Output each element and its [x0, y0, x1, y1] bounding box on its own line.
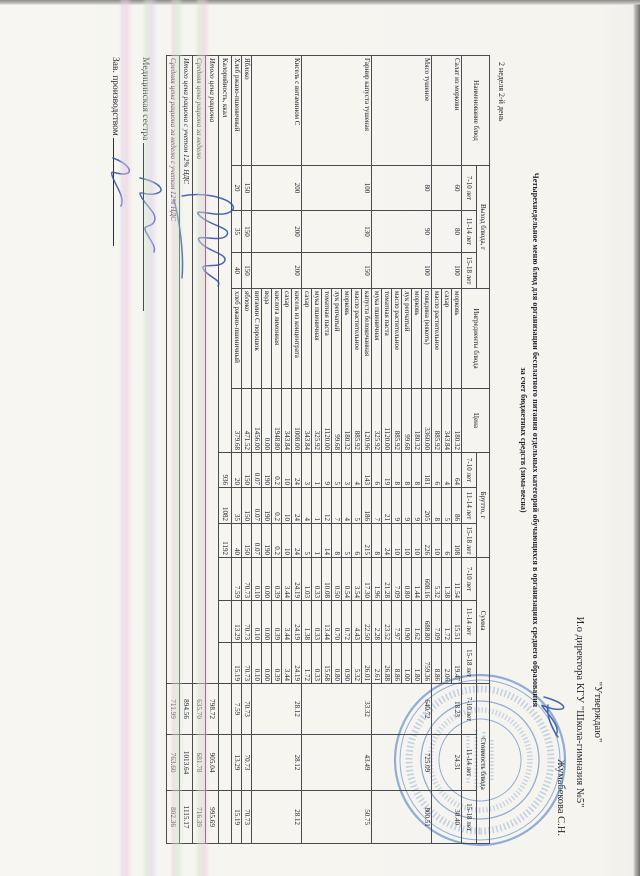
sum-value-cell: 2.06 — [442, 643, 452, 684]
sum-value-cell: 1.72 — [302, 643, 312, 684]
ingredient-price-cell: 120.96 — [362, 389, 372, 453]
ingredient-name-cell: лук репчатый — [402, 289, 412, 389]
dish-output-cell: 130 — [302, 211, 372, 253]
sum-value-cell: 0.90 — [402, 601, 412, 643]
ingredient-name-cell: мука пшеничная — [312, 289, 322, 389]
footer-row: Средняя цена рациона за неделю635.70681.… — [193, 56, 206, 844]
brutto-value-cell: 8 — [432, 488, 442, 524]
brutto-value-cell: 8 — [392, 453, 402, 488]
sum-value-cell: 70.73 — [242, 558, 252, 601]
dish-cost-cell: 18.23 — [432, 684, 462, 735]
brutto-value-cell: 21 — [382, 488, 392, 524]
brutto-value-cell: 186 — [362, 488, 372, 524]
ingredient-name-cell: хлеб ржано-пшеничный — [232, 289, 242, 389]
calories-label-cell: Калорийность, ккал — [219, 56, 232, 453]
sum-value-cell: 0.39 — [272, 601, 282, 643]
dish-cost-cell: 50.75 — [302, 791, 372, 844]
dish-cost-cell: 13.29 — [232, 735, 242, 791]
dish-cost-cell: 800.51 — [372, 791, 432, 844]
ingredient-price-cell: 1948.80 — [272, 389, 282, 453]
ingredient-name-cell: говядина (мякоть) — [422, 289, 432, 389]
brutto-value-cell: 0.07 — [252, 453, 262, 488]
sum-value-cell: 688.80 — [422, 601, 432, 643]
nurse-signature-label: Медицинская сестра — [140, 57, 150, 140]
brutto-value-cell: 5 — [332, 453, 342, 488]
footer-value-cell: 635.70 — [193, 684, 206, 735]
brutto-value-cell: 4 — [302, 488, 312, 524]
brutto-value-cell: 0.2 — [272, 524, 282, 558]
sum-value-cell: 3.54 — [352, 558, 362, 601]
dish-cost-cell: 28.12 — [252, 791, 302, 844]
brutto-value-cell: 190 — [262, 453, 272, 488]
brutto-value-cell: 0.2 — [272, 488, 282, 524]
header-price: Цена — [462, 389, 490, 453]
sum-value-cell: 11.54 — [452, 558, 462, 601]
empty-cell — [219, 558, 232, 601]
brutto-value-cell: 10 — [282, 524, 292, 558]
brutto-value-cell: 9 — [402, 488, 412, 524]
dish-output-cell: 40 — [232, 253, 242, 289]
brutto-value-cell: 24 — [292, 524, 302, 558]
brutto-value-cell: 0.07 — [252, 524, 262, 558]
brutto-value-cell: 10 — [412, 524, 422, 558]
brutto-value-cell: 10 — [282, 488, 292, 524]
sum-value-cell: 26.01 — [362, 643, 372, 684]
sum-value-cell: 1.38 — [302, 601, 312, 643]
dish-output-cell: 100 — [432, 253, 462, 289]
brutto-value-cell: 4 — [342, 488, 352, 524]
footer-value-cell: 711.99 — [167, 684, 180, 735]
brutto-value-cell: 108 — [452, 524, 462, 558]
sum-value-cell: 0.33 — [312, 643, 322, 684]
ingredient-name-cell: сахар — [442, 289, 452, 389]
sum-value-cell: 608.16 — [422, 558, 432, 601]
sum-value-cell: 0.72 — [342, 601, 352, 643]
sum-value-cell: 1.00 — [402, 643, 412, 684]
document-title: Четырехнедельное меню блюд для организац… — [519, 90, 540, 790]
ingredient-name-cell: сахар — [302, 289, 312, 389]
title-line-1: Четырехнедельное меню блюд для организац… — [531, 90, 540, 790]
ingredient-row: Мясо тушеное8090100говядина (мякоть)3360… — [422, 56, 432, 844]
dish-name-cell: Мясо тушеное — [372, 56, 432, 166]
dish-cost-cell: 7.59 — [232, 684, 242, 735]
brutto-value-cell: 64 — [452, 453, 462, 488]
ingredient-price-cell: 1456.00 — [252, 389, 262, 453]
header-brutto: Брутто, г — [477, 453, 490, 558]
brutto-value-cell: 5 — [342, 524, 352, 558]
ingredient-row: Хлеб ржано-пшеничный203540хлеб ржано-пше… — [232, 56, 242, 844]
dish-cost-cell: 28.12 — [252, 684, 302, 735]
sum-value-cell: 10.08 — [322, 558, 332, 601]
dish-cost-cell: 640.72 — [372, 684, 432, 735]
sum-value-cell: 7.09 — [392, 558, 402, 601]
dish-output-cell: 100 — [372, 253, 432, 289]
sum-value-cell: 8.86 — [432, 643, 442, 684]
ingredient-name-cell: морковь — [412, 289, 422, 389]
brutto-value-cell: 14 — [322, 524, 332, 558]
ingredient-price-cell: 343.84 — [442, 389, 452, 453]
dish-cost-cell: 28.12 — [252, 735, 302, 791]
brutto-value-cell: 1 — [312, 453, 322, 488]
footer-label-cell: Итого цена рациона — [206, 56, 219, 684]
dish-cost-cell: 43.49 — [302, 735, 372, 791]
sum-value-cell: 1.96 — [372, 558, 382, 601]
footer-row: Средняя цена рациона за неделю с учетом … — [167, 56, 180, 844]
table-header: Наименование блюд Выход блюда, г Ингреди… — [462, 56, 490, 844]
dish-name-cell: Кисель с витамином С — [252, 56, 302, 166]
dish-cost-cell: 33.32 — [302, 684, 372, 735]
dish-output-cell: 200 — [252, 166, 302, 211]
sum-value-cell: 3.44 — [282, 643, 292, 684]
empty-cell — [219, 735, 232, 791]
production-manager-signature-row: Зав. производством — [110, 57, 123, 246]
nurse-signature-row: Медицинская сестра — [140, 57, 153, 311]
brutto-value-cell: 10 — [282, 453, 292, 488]
dish-cost-cell: 70.73 — [242, 684, 252, 735]
production-manager-signature-label: Зав. производством — [110, 57, 120, 136]
sum-value-cell: 3.44 — [282, 558, 292, 601]
brutto-value-cell: 10 — [392, 524, 402, 558]
sum-value-cell: 0.80 — [402, 558, 412, 601]
dish-cost-cell: 725.09 — [372, 735, 432, 791]
sum-value-cell: 24.19 — [292, 643, 302, 684]
ingredient-price-cell: 0.00 — [262, 389, 272, 453]
brutto-value-cell: 5 — [302, 524, 312, 558]
header-age-2: 11-14 лет — [462, 211, 477, 253]
header-age-1: 7-10 лет — [462, 453, 477, 488]
brutto-value-cell: 10 — [402, 524, 412, 558]
footer-value-cell: 716.39 — [193, 791, 206, 844]
header-dish-name: Наименование блюд — [462, 56, 490, 166]
brutto-value-cell: 190 — [262, 524, 272, 558]
sum-value-cell: 26.88 — [382, 643, 392, 684]
sum-value-cell: 4.43 — [352, 601, 362, 643]
dish-name-cell: Хлеб ржано-пшеничный — [232, 56, 242, 166]
ingredient-name-cell: витамин С порошок — [252, 289, 262, 389]
production-manager-signature-line — [113, 138, 123, 246]
brutto-value-cell: 0.07 — [252, 488, 262, 524]
brutto-value-cell: 20 — [232, 453, 242, 488]
dish-output-cell: 80 — [432, 211, 462, 253]
sum-value-cell: 0.50 — [332, 558, 342, 601]
ingredient-row: Салат из моркови6080100морковь180.326486… — [452, 56, 462, 844]
sum-value-cell: 0.70 — [332, 601, 342, 643]
brutto-value-cell: 6 — [352, 524, 362, 558]
sum-value-cell: 13.44 — [322, 601, 332, 643]
sum-value-cell: 21.28 — [382, 558, 392, 601]
ingredient-price-cell: 379.68 — [232, 389, 242, 453]
ingredient-name-cell: томатная паста — [322, 289, 332, 389]
header-sum: Сумма — [477, 558, 490, 684]
brutto-value-cell: 86 — [452, 488, 462, 524]
brutto-value-cell: 7 — [332, 488, 342, 524]
sum-value-cell: 0.39 — [272, 643, 282, 684]
ingredient-price-cell: 325.92 — [312, 389, 322, 453]
ingredient-price-cell: 325.92 — [372, 389, 382, 453]
scan-edge-left — [0, 0, 640, 5]
ingredient-price-cell: 3360.00 — [422, 389, 432, 453]
ingredient-name-cell: морковь — [452, 289, 462, 389]
empty-cell — [219, 601, 232, 643]
sum-value-cell: 0.33 — [312, 601, 322, 643]
brutto-value-cell: 0.2 — [272, 453, 282, 488]
brutto-value-cell: 40 — [232, 524, 242, 558]
header-age-1: 7-10 лет — [462, 684, 477, 735]
brutto-value-cell: 150 — [242, 488, 252, 524]
footer-value-cell: 681.78 — [193, 735, 206, 791]
ingredient-name-cell: сахар — [282, 289, 292, 389]
scan-edge-top — [633, 0, 640, 876]
dish-cost-cell: 15.19 — [232, 791, 242, 844]
ingredient-price-cell: 343.84 — [302, 389, 312, 453]
sum-value-cell: 7.59 — [232, 558, 242, 601]
sum-value-cell: 13.29 — [232, 601, 242, 643]
dish-cost-cell: 70.73 — [242, 735, 252, 791]
brutto-value-cell: 4 — [352, 453, 362, 488]
header-age-3: 15-18 лет — [462, 791, 477, 844]
scanned-document-viewport: "Утверждаю" И.о директора КГУ "Школа-гим… — [0, 0, 640, 876]
header-age-1: 7-10 лет — [462, 558, 477, 601]
sum-value-cell: 23.52 — [382, 601, 392, 643]
footer-value-cell: 894.56 — [180, 684, 193, 735]
sum-value-cell: 1.72 — [442, 601, 452, 643]
sum-value-cell: 5.32 — [432, 558, 442, 601]
footer-value-cell: 763.60 — [167, 735, 180, 791]
dish-cost-cell: 24.31 — [432, 735, 462, 791]
brutto-value-cell: 12 — [322, 488, 332, 524]
footer-label-cell: Средняя цена рациона за неделю с учетом … — [167, 56, 180, 684]
sum-value-cell: 15.19 — [232, 643, 242, 684]
dish-cost-cell: 70.73 — [242, 791, 252, 844]
brutto-value-cell: 9 — [412, 488, 422, 524]
ingredient-name-cell: лук репчатый — [332, 289, 342, 389]
sum-value-cell: 15.68 — [322, 643, 332, 684]
ingredient-price-cell: 343.84 — [282, 389, 292, 453]
header-age-1: 7-10 лет — [462, 166, 477, 211]
header-age-3: 15-18 лет — [462, 643, 477, 684]
dish-output-cell: 90 — [372, 211, 432, 253]
header-age-2: 11-14 лет — [462, 735, 477, 791]
sum-value-cell: 17.30 — [362, 558, 372, 601]
sum-value-cell: 0.00 — [262, 643, 272, 684]
sum-value-cell: 0.00 — [262, 601, 272, 643]
ingredient-price-cell: 1120.00 — [322, 389, 332, 453]
header-ingredients: Ингредиенты блюда — [462, 289, 490, 389]
brutto-value-cell: 143 — [362, 453, 372, 488]
brutto-value-cell: 215 — [362, 524, 372, 558]
dish-output-cell: 100 — [302, 166, 372, 211]
sum-value-cell: 24.19 — [292, 558, 302, 601]
header-age-3: 15-18 лет — [462, 524, 477, 558]
sum-value-cell: 24.19 — [292, 601, 302, 643]
ingredient-row: Яблоко150150150яблоко471.5215015015070.7… — [242, 56, 252, 844]
footer-value-cell: 905.04 — [206, 735, 219, 791]
footer-value-cell: 1115.17 — [180, 791, 193, 844]
brutto-value-cell: 5 — [352, 488, 362, 524]
calories-value-cell: 1192 — [219, 524, 232, 558]
footer-value-cell: 802.36 — [167, 791, 180, 844]
brutto-value-cell: 24 — [382, 524, 392, 558]
table-body: Салат из моркови6080100морковь180.326486… — [167, 56, 462, 844]
footer-value-cell: 1013.64 — [180, 735, 193, 791]
header-age-3: 15-18 лет — [462, 253, 477, 289]
title-line-2: за счет бюджетных средств (зима-весна) — [519, 90, 528, 790]
dish-output-cell: 200 — [252, 253, 302, 289]
sum-value-cell: 0.39 — [272, 558, 282, 601]
ingredient-price-cell: 885.92 — [352, 389, 362, 453]
brutto-value-cell: 8 — [332, 524, 342, 558]
empty-cell — [219, 684, 232, 735]
brutto-value-cell: 8 — [372, 524, 382, 558]
dish-name-cell: Гарнир капуста тушеная — [302, 56, 372, 166]
dish-output-cell: 20 — [232, 166, 242, 211]
ingredient-name-cell: вода — [262, 289, 272, 389]
menu-table: Наименование блюд Выход блюда, г Ингреди… — [166, 55, 490, 844]
ingredient-name-cell: капуста белокочанная — [362, 289, 372, 389]
ingredient-price-cell: 1008.00 — [292, 389, 302, 453]
sum-value-cell: 0.33 — [312, 558, 322, 601]
dish-output-cell: 150 — [242, 166, 252, 211]
ingredient-row: Гарнир капуста тушеная100130150капуста б… — [362, 56, 372, 844]
dish-name-cell: Яблоко — [242, 56, 252, 166]
sum-value-cell: 759.36 — [422, 643, 432, 684]
empty-cell — [219, 643, 232, 684]
sum-value-cell: 3.44 — [282, 601, 292, 643]
ingredient-name-cell: кислота лимонная — [272, 289, 282, 389]
dish-output-cell: 150 — [242, 253, 252, 289]
header-cost: Стоимость блюда — [477, 684, 490, 844]
sum-value-cell: 8.86 — [392, 643, 402, 684]
ingredient-price-cell: 1120.00 — [382, 389, 392, 453]
brutto-value-cell: 7 — [372, 488, 382, 524]
brutto-value-cell: 24 — [292, 453, 302, 488]
brutto-value-cell: 10 — [432, 524, 442, 558]
sum-value-cell: 1.03 — [302, 558, 312, 601]
sum-value-cell: 1.80 — [412, 643, 422, 684]
ingredient-price-cell: 180.32 — [412, 389, 422, 453]
brutto-value-cell: 1 — [312, 524, 322, 558]
sum-value-cell: 0.00 — [262, 558, 272, 601]
sum-value-cell: 15.51 — [452, 601, 462, 643]
sum-value-cell: 5.32 — [352, 643, 362, 684]
brutto-value-cell: 8 — [402, 453, 412, 488]
nurse-signature-line — [143, 143, 153, 311]
ingredient-name-cell: яблоко — [242, 289, 252, 389]
dish-output-cell: 35 — [232, 211, 242, 253]
sum-value-cell: 0.10 — [252, 558, 262, 601]
brutto-value-cell: 150 — [242, 524, 252, 558]
ingredient-row: Кисель с витамином С200200200кисель из к… — [292, 56, 302, 844]
ingredient-name-cell: морковь — [342, 289, 352, 389]
brutto-value-cell: 190 — [262, 488, 272, 524]
footer-row: Итого цена рациона с учетом 12% НДС894.5… — [180, 56, 193, 844]
sum-value-cell: 0.54 — [342, 558, 352, 601]
brutto-value-cell: 1 — [312, 488, 322, 524]
ingredient-price-cell: 99.68 — [402, 389, 412, 453]
dish-output-cell: 200 — [252, 211, 302, 253]
menu-sheet: "Утверждаю" И.о директора КГУ "Школа-гим… — [0, 0, 640, 876]
dish-output-cell: 80 — [372, 166, 432, 211]
footer-label-cell: Итого цена рациона с учетом 12% НДС — [180, 56, 193, 684]
header-age-2: 11-14 лет — [462, 601, 477, 643]
ingredient-name-cell: мука пшеничная — [372, 289, 382, 389]
sum-value-cell: 1.38 — [442, 558, 452, 601]
header-output: Выход блюда, г — [477, 166, 490, 289]
ingredient-price-cell: 180.32 — [452, 389, 462, 453]
header-age-2: 11-14 лет — [462, 488, 477, 524]
sum-value-cell: 7.97 — [392, 601, 402, 643]
approval-director: И.о директора КГУ "Школа-гимназия №5" — [569, 562, 587, 862]
brutto-value-cell: 9 — [322, 453, 332, 488]
sum-value-cell: 1.62 — [412, 601, 422, 643]
dish-output-cell: 150 — [242, 211, 252, 253]
calories-value-cell: 1082 — [219, 488, 232, 524]
brutto-value-cell: 9 — [392, 488, 402, 524]
footer-value-cell: 798.72 — [206, 684, 219, 735]
calories-row: Калорийность, ккал93610821192 — [219, 56, 232, 844]
brutto-value-cell: 4 — [442, 453, 452, 488]
brutto-value-cell: 3 — [302, 453, 312, 488]
sum-value-cell: 70.73 — [242, 601, 252, 643]
sum-value-cell: 0.90 — [342, 643, 352, 684]
sum-value-cell: 2.28 — [372, 601, 382, 643]
sum-value-cell: 70.73 — [242, 643, 252, 684]
dish-cost-cell: 30.40 — [432, 791, 462, 844]
brutto-value-cell: 150 — [242, 453, 252, 488]
sum-value-cell: 0.10 — [252, 601, 262, 643]
ingredient-price-cell: 471.52 — [242, 389, 252, 453]
brutto-value-cell: 205 — [422, 488, 432, 524]
sum-value-cell: 1.44 — [412, 558, 422, 601]
brutto-value-cell: 3 — [342, 453, 352, 488]
ingredient-name-cell: томатная паста — [382, 289, 392, 389]
dish-name-cell: Салат из моркови — [432, 56, 462, 166]
brutto-value-cell: 6 — [442, 524, 452, 558]
dish-output-cell: 60 — [432, 166, 462, 211]
ingredient-name-cell: масло растительное — [392, 289, 402, 389]
ingredient-price-cell: 885.92 — [432, 389, 442, 453]
ingredient-price-cell: 885.92 — [392, 389, 402, 453]
brutto-value-cell: 5 — [442, 488, 452, 524]
brutto-value-cell: 35 — [232, 488, 242, 524]
ingredient-name-cell: кисель из концентрата — [292, 289, 302, 389]
brutto-value-cell: 6 — [432, 453, 442, 488]
footer-value-cell: 995.69 — [206, 791, 219, 844]
ingredient-price-cell: 99.68 — [332, 389, 342, 453]
brutto-value-cell: 6 — [372, 453, 382, 488]
brutto-value-cell: 8 — [412, 453, 422, 488]
approval-word: "Утверждаю" — [588, 562, 606, 862]
brutto-value-cell: 24 — [292, 488, 302, 524]
brutto-value-cell: 19 — [382, 453, 392, 488]
brutto-value-cell: 181 — [422, 453, 432, 488]
sum-value-cell: 19.47 — [452, 643, 462, 684]
sum-value-cell: 22.50 — [362, 601, 372, 643]
ingredient-name-cell: масло растительное — [432, 289, 442, 389]
ingredient-name-cell: масло растительное — [352, 289, 362, 389]
ingredient-price-cell: 180.32 — [342, 389, 352, 453]
footer-label-cell: Средняя цена рациона за неделю — [193, 56, 206, 684]
sum-value-cell: 2.61 — [372, 643, 382, 684]
calories-value-cell: 936 — [219, 453, 232, 488]
sum-value-cell: 0.80 — [332, 643, 342, 684]
dish-output-cell: 150 — [302, 253, 372, 289]
empty-cell — [219, 791, 232, 844]
sum-value-cell: 0.10 — [252, 643, 262, 684]
sum-value-cell: 7.09 — [432, 601, 442, 643]
brutto-value-cell: 226 — [422, 524, 432, 558]
footer-row: Итого цена рациона798.72905.04995.69 — [206, 56, 219, 844]
